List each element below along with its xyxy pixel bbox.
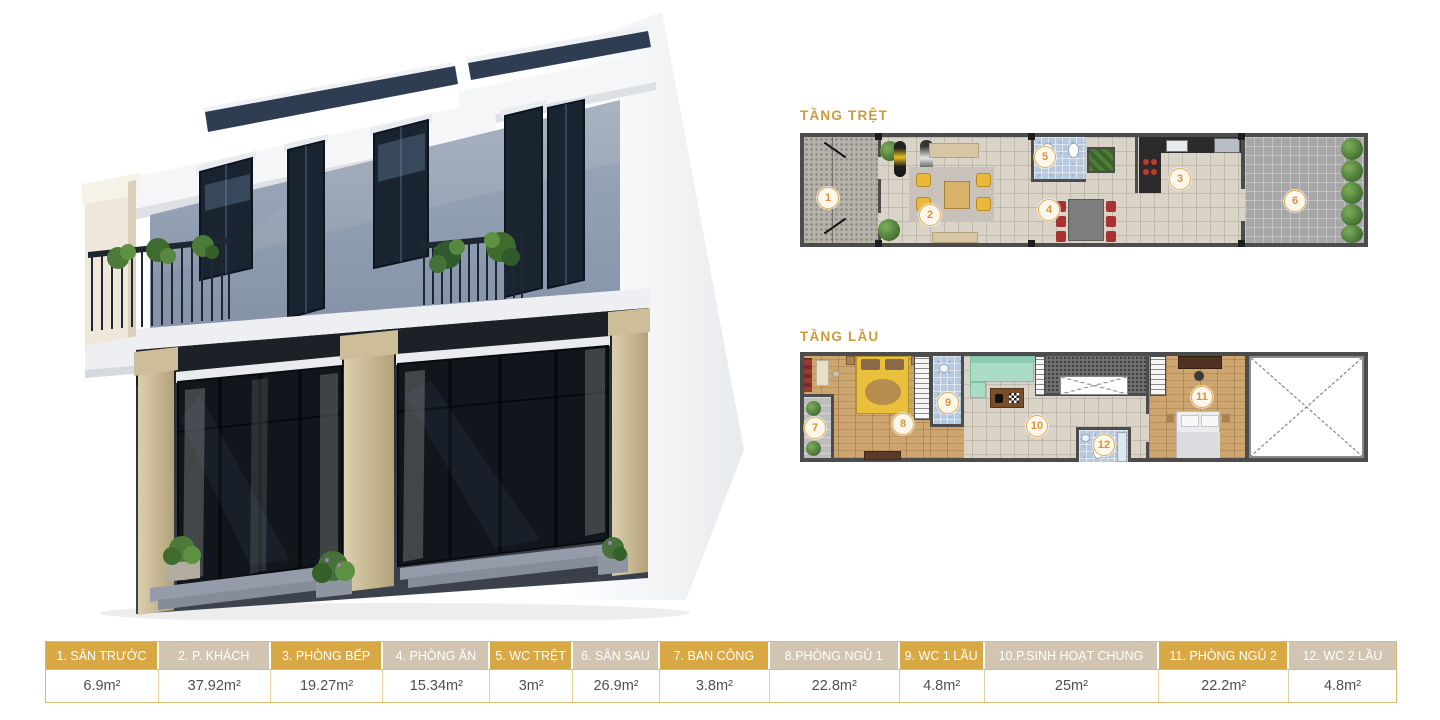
marker-number: 10	[1031, 420, 1043, 432]
legend-header: 11. PHÒNG NGỦ 2	[1159, 642, 1289, 669]
planter	[1087, 147, 1115, 173]
legend-value: 19.27m²	[271, 669, 384, 702]
legend-value: 15.34m²	[383, 669, 490, 702]
vanity	[816, 360, 829, 386]
room-marker: 11	[1191, 386, 1213, 408]
legend-value: 3m²	[490, 669, 573, 702]
room-marker: 8	[892, 413, 914, 435]
zone-front-yard	[804, 137, 878, 243]
room-marker: 12	[1093, 434, 1115, 456]
marker-number: 1	[825, 192, 831, 204]
legend-header: 8.PHÒNG NGỦ 1	[770, 642, 900, 669]
legend-column: 10.P.SINH HOẠT CHUNG 25m²	[985, 642, 1160, 702]
room-marker: 1	[817, 187, 839, 209]
room-marker: 4	[1038, 199, 1060, 221]
plant	[878, 219, 900, 241]
coffee-table-upper	[990, 388, 1024, 408]
room-marker: 9	[937, 392, 959, 414]
house-render	[78, 5, 750, 620]
marker-number: 2	[927, 209, 933, 221]
legend-header: 12. WC 2 LẦU	[1289, 642, 1396, 669]
page: TẦNG TRỆT	[0, 0, 1440, 720]
marker-number: 3	[1177, 173, 1183, 185]
marker-number: 11	[1196, 391, 1208, 403]
dining-chair	[1106, 201, 1116, 212]
nightstand	[1222, 414, 1230, 422]
console-table	[932, 232, 978, 243]
legend-header: 10.P.SINH HOẠT CHUNG	[985, 642, 1160, 669]
legend-header: 2. P. KHÁCH	[159, 642, 271, 669]
legend-value: 3.8m²	[660, 669, 770, 702]
zone-hallway	[930, 427, 964, 458]
bed-2	[1176, 411, 1220, 458]
legend-value: 6.9m²	[46, 669, 159, 702]
zone-void	[1249, 356, 1364, 458]
sofa-chaise	[970, 382, 986, 398]
room-marker: 7	[804, 417, 826, 439]
room-marker: 3	[1169, 168, 1191, 190]
marker-number: 8	[900, 418, 906, 430]
upper-plan-label: TẦNG LẦU	[800, 329, 879, 344]
legend-value: 22.8m²	[770, 669, 900, 702]
marker-number: 7	[812, 422, 818, 434]
legend-column: 4. PHÒNG ĂN 15.34m²	[383, 642, 490, 702]
legend-column: 1. SÂN TRƯỚC 6.9m²	[46, 642, 159, 702]
legend-header: 5. WC TRỆT	[490, 642, 573, 669]
kitchen-stove	[1139, 153, 1161, 193]
coffee-table	[944, 181, 970, 209]
legend-column: 8.PHÒNG NGỦ 1 22.8m²	[770, 642, 900, 702]
marker-number: 4	[1046, 204, 1052, 216]
legend-column: 7. BAN CÔNG 3.8m²	[660, 642, 770, 702]
kitchen-counter	[1139, 137, 1241, 153]
legend-value: 4.8m²	[1289, 669, 1396, 702]
marker-number: 5	[1042, 151, 1048, 163]
dining-chair	[1056, 216, 1066, 227]
area-legend-table: 1. SÂN TRƯỚC 6.9m² 2. P. KHÁCH 37.92m² 3…	[45, 641, 1397, 703]
legend-column: 2. P. KHÁCH 37.92m²	[159, 642, 271, 702]
ground-floor-plan: 1 2 3 4 5 6	[800, 133, 1368, 247]
wardrobe	[914, 356, 930, 420]
legend-header: 4. PHÒNG ĂN	[383, 642, 490, 669]
nightstand	[1166, 414, 1174, 422]
wardrobe-2	[1150, 356, 1166, 396]
legend-value: 37.92m²	[159, 669, 271, 702]
bed-1	[856, 356, 909, 414]
motorbike	[894, 141, 906, 177]
legend-value: 25m²	[985, 669, 1160, 702]
armchair	[976, 197, 991, 211]
legend-header: 9. WC 1 LẦU	[900, 642, 985, 669]
legend-header: 1. SÂN TRƯỚC	[46, 642, 159, 669]
sofa-mint	[970, 356, 1034, 382]
upper-floor-plan: 7 8 9 10 11 12	[800, 352, 1368, 462]
legend-header: 3. PHÒNG BẾP	[271, 642, 384, 669]
legend-column: 12. WC 2 LẦU 4.8m²	[1289, 642, 1396, 702]
marker-number: 12	[1098, 439, 1110, 451]
legend-column: 3. PHÒNG BẾP 19.27m²	[271, 642, 384, 702]
ground-plan-label: TẦNG TRỆT	[800, 108, 888, 123]
legend-value: 26.9m²	[573, 669, 660, 702]
room-marker: 5	[1034, 146, 1056, 168]
legend-column: 5. WC TRỆT 3m²	[490, 642, 573, 702]
dining-chair	[1056, 231, 1066, 242]
marker-number: 9	[945, 397, 951, 409]
legend-column: 9. WC 1 LẦU 4.8m²	[900, 642, 985, 702]
marker-number: 6	[1292, 195, 1298, 207]
legend-header: 7. BAN CÔNG	[660, 642, 770, 669]
stairs-void	[1035, 356, 1146, 396]
sofa-top	[929, 143, 979, 158]
legend-column: 6. SÂN SAU 26.9m²	[573, 642, 660, 702]
armchair	[916, 173, 931, 187]
dining-table	[1068, 199, 1104, 241]
armchair	[976, 173, 991, 187]
nightstand	[846, 356, 855, 365]
dining-chair	[1106, 216, 1116, 227]
legend-header: 6. SÂN SAU	[573, 642, 660, 669]
zone-backyard	[1245, 137, 1364, 243]
stool	[832, 370, 840, 378]
bench	[864, 451, 901, 460]
dining-chair	[1106, 231, 1116, 242]
flower-box	[804, 358, 812, 392]
legend-column: 11. PHÒNG NGỦ 2 22.2m²	[1159, 642, 1289, 702]
room-marker: 10	[1026, 415, 1048, 437]
desk	[1178, 356, 1222, 369]
desk-chair	[1194, 371, 1204, 381]
legend-value: 4.8m²	[900, 669, 985, 702]
room-marker: 2	[919, 204, 941, 226]
legend-value: 22.2m²	[1159, 669, 1289, 702]
house-ground-floor	[134, 308, 650, 615]
room-marker: 6	[1284, 190, 1306, 212]
